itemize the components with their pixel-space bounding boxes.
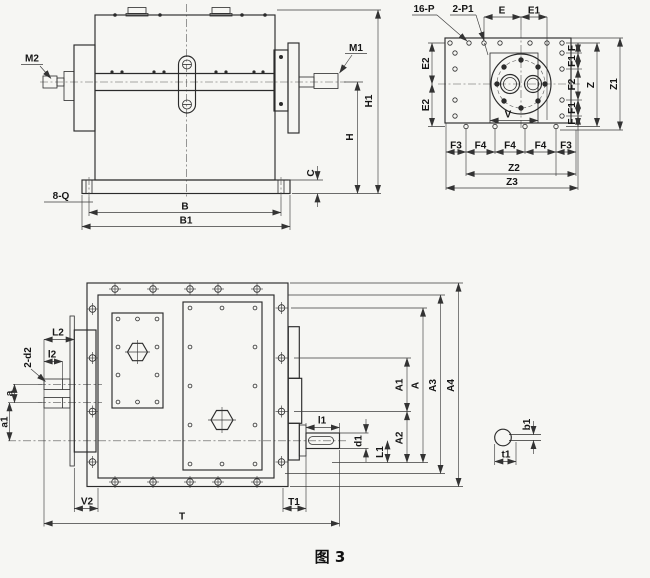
dim-label-e2-top: E2: [421, 57, 432, 70]
dim-label-a1-big: A1: [395, 378, 406, 391]
input-flange: [74, 45, 95, 131]
perimeter-bolts: [87, 283, 288, 488]
dim-label-2d2: 2-d2: [23, 347, 34, 368]
oil-plug-hex: [125, 340, 150, 364]
dim-label-l1-big: L1: [375, 446, 386, 458]
input-flange-plate: [74, 330, 96, 452]
drawing-canvas: M2 M1 H1 H C 8-Q B B1: [0, 0, 650, 578]
dim-label-v2: V2: [81, 497, 94, 508]
front-view: M2 M1 H1 H C 8-Q B B1: [21, 4, 381, 230]
dim-label-z: Z: [586, 82, 597, 88]
dim-label-f1-top: F1: [567, 55, 578, 67]
top-view: L2 l2 2-d2 a a1 l1 d1 L1 A1 A2 A A3 A4 T…: [0, 283, 463, 527]
inspection-cover-small: [112, 313, 163, 408]
dim-label-16p: 16-P: [413, 4, 434, 15]
output-bracket: [274, 50, 288, 111]
dim-label-t1-key: t1: [502, 450, 511, 461]
top-view-dimensions: [8, 283, 463, 527]
input-studs: [44, 379, 70, 408]
dim-label-f4-1: F4: [475, 141, 487, 152]
dim-label-a: a: [5, 390, 16, 396]
front-view-dimensions: [21, 10, 381, 230]
dim-label-t: T: [179, 512, 185, 523]
shaft-face-view: 16-P 2-P1 E E1 E2 E2 F F1 F2 F1 F Z Z1 V…: [412, 4, 623, 190]
dim-label-a-big: A: [411, 382, 422, 389]
dim-label-e2-bottom: E2: [421, 98, 432, 111]
inspection-cover-large: [183, 302, 262, 470]
dim-label-t1: T1: [288, 497, 300, 508]
dim-label-l2-small: l2: [48, 350, 57, 361]
dim-label-f4-3: F4: [535, 141, 547, 152]
dim-label-a2-big: A2: [395, 431, 406, 444]
dim-label-a3-big: A3: [428, 379, 439, 392]
dim-label-f2: F2: [567, 78, 578, 90]
dim-label-c: C: [306, 169, 317, 176]
dim-label-l2-big: L2: [52, 328, 64, 339]
dim-label-f4-2: F4: [504, 141, 516, 152]
dim-label-m2: M2: [25, 54, 39, 65]
dim-label-m1: M1: [349, 43, 363, 54]
oil-plug-hex: [208, 407, 236, 433]
bearing-bosses: [288, 327, 306, 460]
dim-label-v: V: [505, 110, 512, 121]
dim-label-f1-bottom: F1: [567, 102, 578, 114]
center-bearing-strap: [179, 56, 196, 113]
dim-label-a1-small: a1: [0, 416, 11, 428]
base-flange: [82, 180, 290, 194]
dim-label-b1: B1: [180, 216, 193, 227]
dim-label-e: E: [499, 6, 506, 17]
dim-label-2p1: 2-P1: [452, 4, 474, 15]
output-shaft-m1: [299, 74, 338, 89]
dim-label-z3: Z3: [506, 177, 518, 188]
housing-top-face: [98, 295, 274, 478]
housing-body: [95, 15, 275, 180]
figure-caption: 图 3: [315, 548, 346, 566]
key-section-detail: b1 t1: [495, 418, 541, 465]
dim-label-z2: Z2: [508, 163, 520, 174]
dim-label-a4-big: A4: [446, 379, 457, 392]
dim-label-h: H: [345, 133, 356, 140]
dim-label-z1: Z1: [609, 78, 620, 90]
shaft-section: [495, 429, 512, 446]
dim-label-b1-key: b1: [522, 418, 533, 430]
figure-3-drawing: M2 M1 H1 H C 8-Q B B1: [0, 0, 650, 578]
dim-label-l1-small: l1: [318, 416, 327, 427]
input-plate: [70, 316, 74, 466]
dim-label-f3-right: F3: [560, 141, 572, 152]
dim-label-d1: d1: [354, 435, 365, 447]
dim-label-f3-left: F3: [450, 141, 462, 152]
dim-label-f-top: F: [567, 45, 578, 51]
dim-label-f-bottom: F: [567, 118, 578, 124]
dim-label-b: B: [181, 202, 188, 213]
dim-label-e1: E1: [528, 6, 541, 17]
dim-label-h1: H1: [364, 94, 375, 107]
dim-label-8q: 8-Q: [53, 191, 70, 202]
